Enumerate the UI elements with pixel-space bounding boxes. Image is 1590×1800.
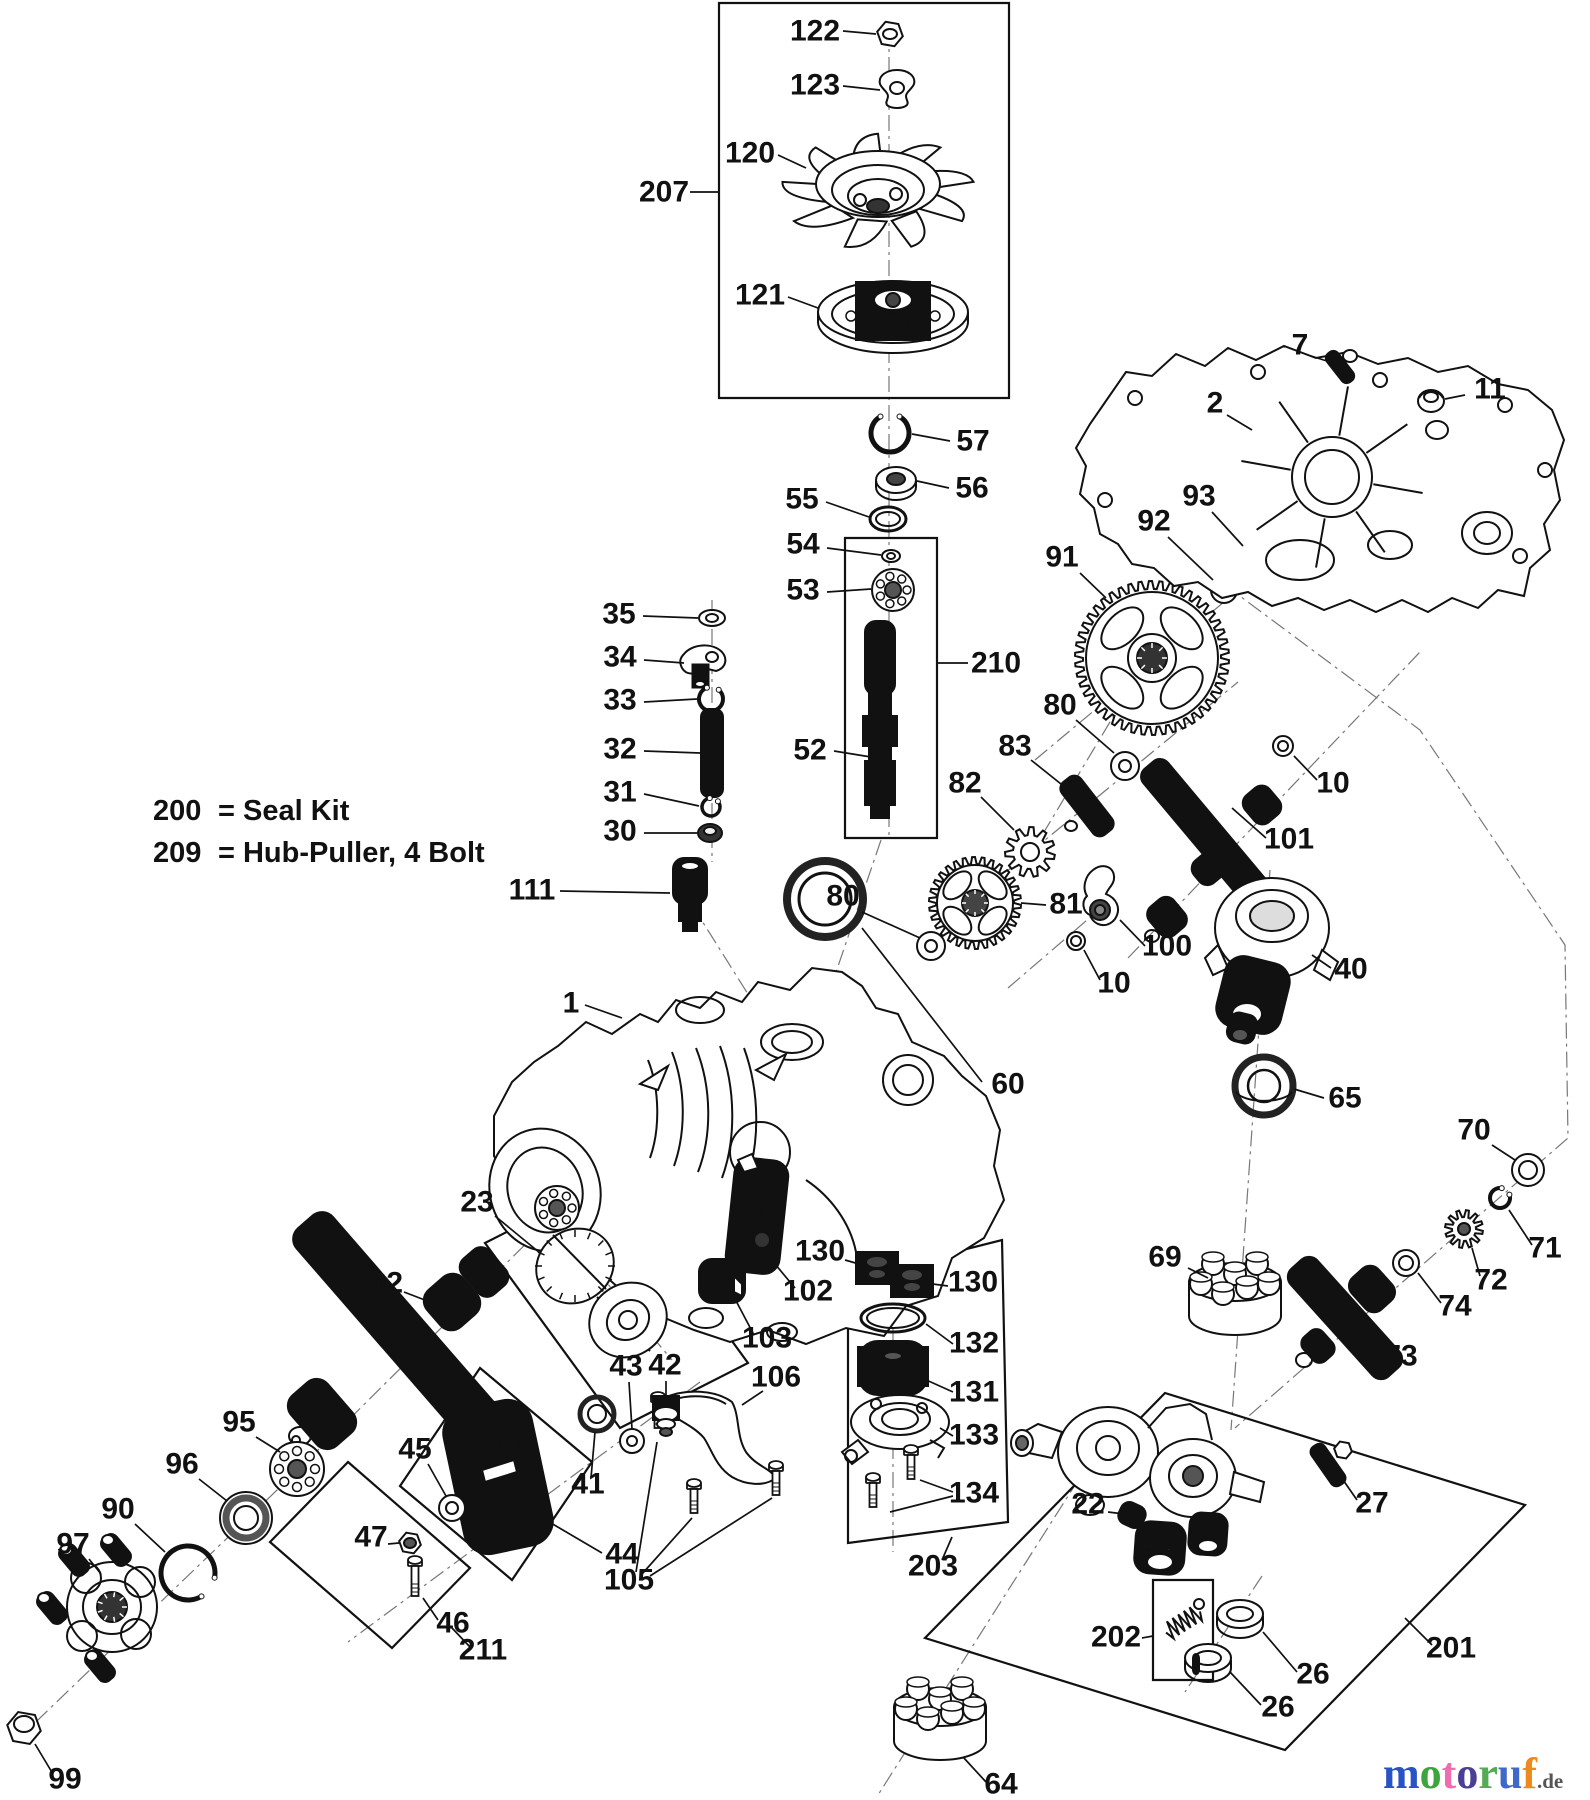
part-label-93-24: 93	[1182, 480, 1215, 513]
part-label-26-48: 26	[1296, 1658, 1329, 1691]
part-label-80-19: 80	[826, 880, 859, 913]
part-seal-26a	[1217, 1600, 1263, 1638]
part-label-57-5: 57	[956, 425, 989, 458]
part-nut-122	[877, 22, 903, 46]
part-label-10-35: 10	[1316, 767, 1349, 800]
part-washer-45	[439, 1495, 465, 1521]
part-label-207-3: 207	[639, 176, 689, 209]
legend-desc-209: = Hub-Puller, 4 Bolt	[218, 837, 485, 869]
part-label-11-27: 11	[1474, 373, 1506, 406]
part-pin-83	[1065, 780, 1110, 832]
part-label-210-10: 210	[971, 647, 1021, 680]
part-label-44-72: 44	[605, 1538, 639, 1571]
leader-line-0	[843, 31, 876, 34]
legend-num-209: 209	[153, 837, 201, 869]
leader-line-2	[778, 155, 806, 168]
leader-line-38	[1492, 1145, 1515, 1160]
leader-line-54	[890, 1496, 953, 1512]
part-ring-70	[1512, 1154, 1544, 1186]
part-label-92-23: 92	[1137, 505, 1170, 538]
part-washer-80b	[1111, 752, 1139, 780]
part-rotor-133	[842, 1395, 949, 1464]
legend-desc-200: = Seal Kit	[218, 795, 350, 827]
part-label-97-67: 97	[56, 1528, 89, 1561]
part-washer-74	[1393, 1250, 1419, 1276]
part-sensor-111	[681, 862, 699, 928]
part-label-111-18: 111	[509, 874, 556, 907]
leader-line-4	[788, 297, 818, 308]
part-arm-34	[680, 645, 725, 687]
part-bolt-27	[1313, 1442, 1352, 1484]
part-pulley-121	[818, 281, 968, 353]
part-label-82-30: 82	[948, 767, 981, 800]
part-washer-43	[620, 1429, 644, 1453]
part-label-53-9: 53	[786, 574, 819, 607]
part-label-203-51: 203	[908, 1550, 958, 1583]
part-drawings	[7, 22, 1564, 1760]
leader-line-16	[644, 794, 699, 806]
part-label-55-7: 55	[785, 483, 818, 516]
part-label-212-63: 212	[353, 1267, 403, 1300]
part-brake-100	[1083, 866, 1118, 925]
part-snapring-90	[161, 1546, 217, 1600]
part-piston-131	[875, 1349, 911, 1387]
part-label-30-17: 30	[603, 815, 636, 848]
leader-line-20	[585, 1005, 622, 1018]
leader-line-13	[644, 660, 684, 663]
part-gear-81	[929, 857, 1021, 949]
leader-line-46	[1142, 1636, 1153, 1638]
part-nut-99	[7, 1712, 40, 1744]
part-label-35-12: 35	[602, 598, 635, 631]
leader-line-35	[1294, 756, 1317, 780]
part-label-132-55: 132	[949, 1327, 999, 1360]
part-label-64-50: 64	[984, 1768, 1018, 1800]
part-keeper-123	[880, 70, 915, 108]
leader-line-67	[256, 1437, 280, 1452]
part-label-133-52: 133	[949, 1419, 999, 1452]
part-label-47-70: 47	[354, 1521, 387, 1554]
part-label-65-37: 65	[1328, 1082, 1361, 1115]
part-guard-106	[664, 1392, 776, 1484]
part-label-54-8: 54	[786, 528, 820, 561]
part-label-32-15: 32	[603, 733, 636, 766]
part-label-1-20: 1	[563, 987, 580, 1020]
leader-line-69	[135, 1524, 165, 1552]
part-snapring-57	[871, 414, 909, 452]
part-label-103-59: 103	[742, 1322, 792, 1355]
part-gear-72	[1445, 1210, 1483, 1248]
part-snapring-33	[699, 685, 723, 711]
part-label-33-14: 33	[603, 684, 636, 717]
leader-line-9	[827, 589, 871, 592]
part-label-122-0: 122	[790, 15, 840, 48]
part-label-106-60: 106	[751, 1361, 801, 1394]
leader-line-15	[644, 751, 700, 753]
part-bracket-44	[465, 1421, 532, 1532]
leader-line-14	[644, 699, 697, 702]
leader-line-49	[1230, 1672, 1261, 1705]
part-label-202-46: 202	[1091, 1621, 1141, 1654]
part-fan-120	[782, 134, 973, 247]
watermark-motoruf: motoruf.de	[1383, 1749, 1563, 1798]
part-label-60-21: 60	[991, 1068, 1024, 1101]
part-label-72-40: 72	[1474, 1264, 1507, 1297]
part-label-43-73: 43	[609, 1350, 642, 1383]
part-bracket-102	[738, 1154, 776, 1261]
part-label-71-39: 71	[1528, 1232, 1561, 1265]
part-label-201-47: 201	[1426, 1632, 1476, 1665]
part-pump-center	[1011, 1404, 1264, 1570]
part-label-7-26: 7	[1292, 329, 1309, 362]
part-ring-54	[882, 550, 900, 562]
part-label-102-58: 102	[783, 1275, 833, 1308]
part-label-95-64: 95	[222, 1406, 255, 1439]
part-label-40-36: 40	[1334, 953, 1367, 986]
part-bearing-56	[876, 467, 916, 500]
leader-line-68	[199, 1479, 227, 1501]
leader-line-64	[650, 1498, 772, 1576]
part-grommet-30	[698, 824, 722, 842]
part-label-91-22: 91	[1045, 541, 1078, 574]
part-clip-31	[702, 796, 720, 816]
part-label-42-74: 42	[648, 1349, 681, 1382]
part-label-80-28: 80	[1043, 689, 1076, 722]
leader-line-50	[963, 1757, 986, 1782]
leader-line-62	[636, 1442, 657, 1572]
part-number-labels: 1221231202071215756555453210523534333231…	[48, 15, 1561, 1800]
leader-line-8	[827, 548, 881, 555]
part-label-69-43: 69	[1148, 1241, 1181, 1274]
part-label-130-57: 130	[948, 1266, 998, 1299]
part-label-56-6: 56	[955, 472, 988, 505]
part-rod-32	[706, 714, 718, 792]
part-label-73-42: 73	[1384, 1340, 1417, 1373]
part-label-99-68: 99	[48, 1763, 81, 1796]
part-label-90-66: 90	[101, 1493, 134, 1526]
part-label-27-45: 27	[1355, 1487, 1388, 1520]
part-label-22-44: 22	[1071, 1488, 1104, 1521]
part-label-211-76: 211	[459, 1634, 507, 1667]
part-valve-42	[654, 1397, 678, 1436]
part-label-26-49: 26	[1261, 1691, 1294, 1724]
part-label-130-56: 130	[795, 1235, 845, 1268]
part-pinion-82	[1005, 827, 1055, 877]
part-label-31-16: 31	[603, 776, 636, 809]
part-plug-11	[1418, 390, 1444, 412]
part-label-70-38: 70	[1457, 1114, 1490, 1147]
part-gear-91	[1075, 581, 1229, 735]
kit-legend: 200= Seal Kit209= Hub-Puller, 4 Bolt	[153, 795, 485, 869]
part-label-121-4: 121	[735, 279, 785, 312]
part-clamp-103	[710, 1270, 742, 1296]
part-label-131-54: 131	[949, 1376, 999, 1409]
leader-line-5	[912, 434, 950, 441]
leader-line-30	[981, 797, 1014, 830]
leader-line-22	[1080, 573, 1106, 598]
leader-line-72	[428, 1464, 446, 1496]
part-oring-10b	[1273, 736, 1293, 756]
leader-line-12	[643, 616, 698, 618]
leader-line-18	[560, 891, 670, 893]
part-shaft-73	[1295, 1264, 1395, 1372]
part-nut-47	[399, 1533, 421, 1554]
part-washer-35	[699, 610, 725, 626]
part-cylblock-69	[1189, 1252, 1281, 1335]
leader-line-7	[826, 502, 869, 517]
part-label-101-34: 101	[1264, 823, 1314, 856]
part-label-41-75: 41	[571, 1468, 604, 1501]
part-label-45-69: 45	[398, 1433, 431, 1466]
part-label-123-1: 123	[790, 69, 840, 102]
leader-line-19	[862, 912, 920, 938]
part-label-52-11: 52	[793, 734, 826, 767]
part-grommet-130a	[866, 1256, 888, 1279]
part-label-34-13: 34	[603, 641, 637, 674]
part-label-96-65: 96	[165, 1448, 198, 1481]
leader-line-48	[1263, 1632, 1297, 1672]
part-bolts-134	[866, 1445, 918, 1507]
part-label-100-32: 100	[1142, 930, 1192, 963]
part-label-83-29: 83	[998, 730, 1031, 763]
part-shaft-52	[871, 628, 889, 814]
part-grommet-130b	[901, 1269, 923, 1292]
leader-line-73	[388, 1543, 399, 1544]
parts-diagram-page: 1221231202071215756555453210523534333231…	[0, 0, 1590, 1800]
part-plate-22	[1123, 1507, 1140, 1523]
part-label-2-25: 2	[1207, 387, 1224, 420]
part-label-81-31: 81	[1049, 888, 1082, 921]
part-oring-10a	[1067, 932, 1085, 950]
part-label-120-2: 120	[725, 137, 775, 170]
part-label-134-53: 134	[949, 1477, 999, 1510]
leader-line-37	[1294, 1089, 1324, 1098]
exploded-parts-diagram: 1221231202071215756555453210523534333231…	[0, 0, 1590, 1800]
part-label-23-62: 23	[460, 1186, 493, 1219]
leader-line-11	[834, 751, 871, 757]
watermark-motoruf-text: motoruf.de	[1383, 1749, 1563, 1798]
leader-line-1	[843, 86, 880, 90]
part-seal-65	[1235, 1057, 1293, 1115]
part-washer-80a	[917, 932, 945, 960]
part-label-74-41: 74	[1438, 1290, 1472, 1323]
part-label-10-33: 10	[1097, 967, 1130, 1000]
part-ring-55	[870, 507, 906, 531]
part-seal-26b	[1185, 1644, 1231, 1682]
part-bearing-23	[535, 1186, 579, 1230]
part-cylblock-64	[894, 1677, 986, 1760]
part-bearing-53	[872, 569, 914, 611]
leader-line-31	[1021, 903, 1046, 905]
part-seal-96	[220, 1492, 272, 1544]
leader-line-6	[917, 481, 949, 488]
part-bolt-46	[408, 1556, 422, 1596]
legend-num-200: 200	[153, 795, 201, 827]
